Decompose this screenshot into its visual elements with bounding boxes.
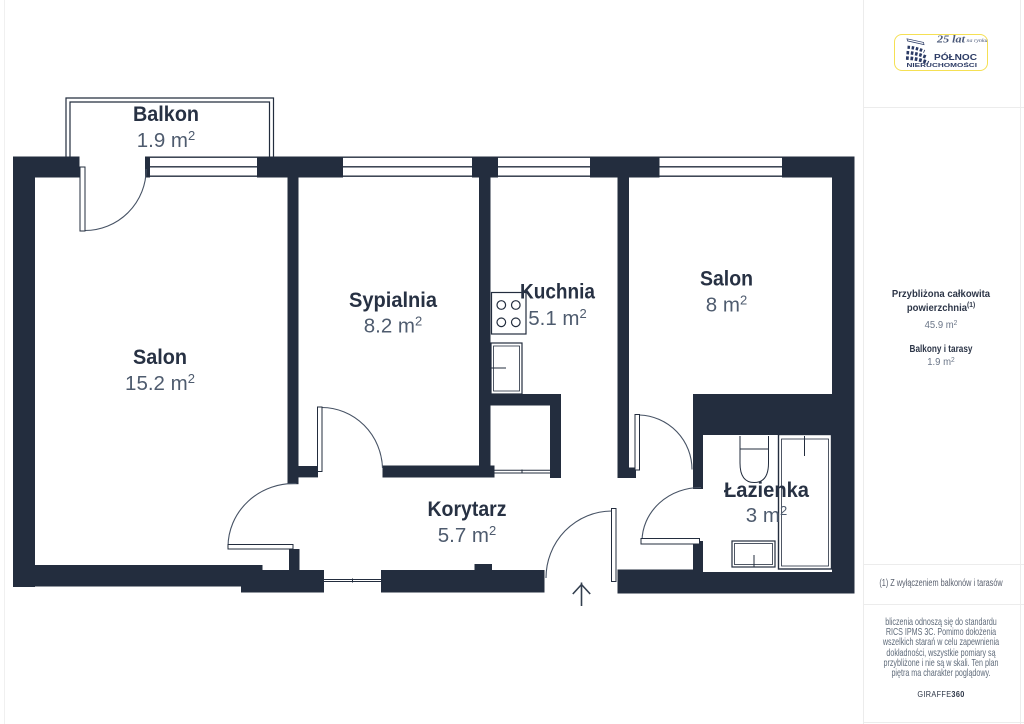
svg-text:na rynku: na rynku: [966, 38, 987, 44]
svg-text:Korytarz: Korytarz: [428, 498, 507, 521]
svg-text:5.1 m2: 5.1 m2: [528, 306, 587, 330]
svg-text:Łazienka: Łazienka: [724, 479, 809, 502]
svg-text:25 lat: 25 lat: [935, 35, 966, 46]
svg-text:PÓŁNOC: PÓŁNOC: [934, 51, 977, 62]
svg-text:15.2 m2: 15.2 m2: [125, 371, 195, 395]
svg-text:8.2 m2: 8.2 m2: [364, 314, 423, 338]
svg-text:5.7 m2: 5.7 m2: [438, 523, 497, 547]
svg-text:Balkon: Balkon: [133, 103, 199, 126]
svg-text:8 m2: 8 m2: [706, 293, 747, 317]
svg-text:Salon: Salon: [133, 346, 187, 369]
svg-text:Kuchnia: Kuchnia: [520, 281, 595, 304]
svg-text:Sypialnia: Sypialnia: [349, 289, 437, 312]
svg-text:NIERUCHOMOŚCI: NIERUCHOMOŚCI: [906, 62, 977, 69]
svg-text:1.9 m2: 1.9 m2: [137, 128, 196, 152]
svg-text:Salon: Salon: [700, 268, 753, 291]
